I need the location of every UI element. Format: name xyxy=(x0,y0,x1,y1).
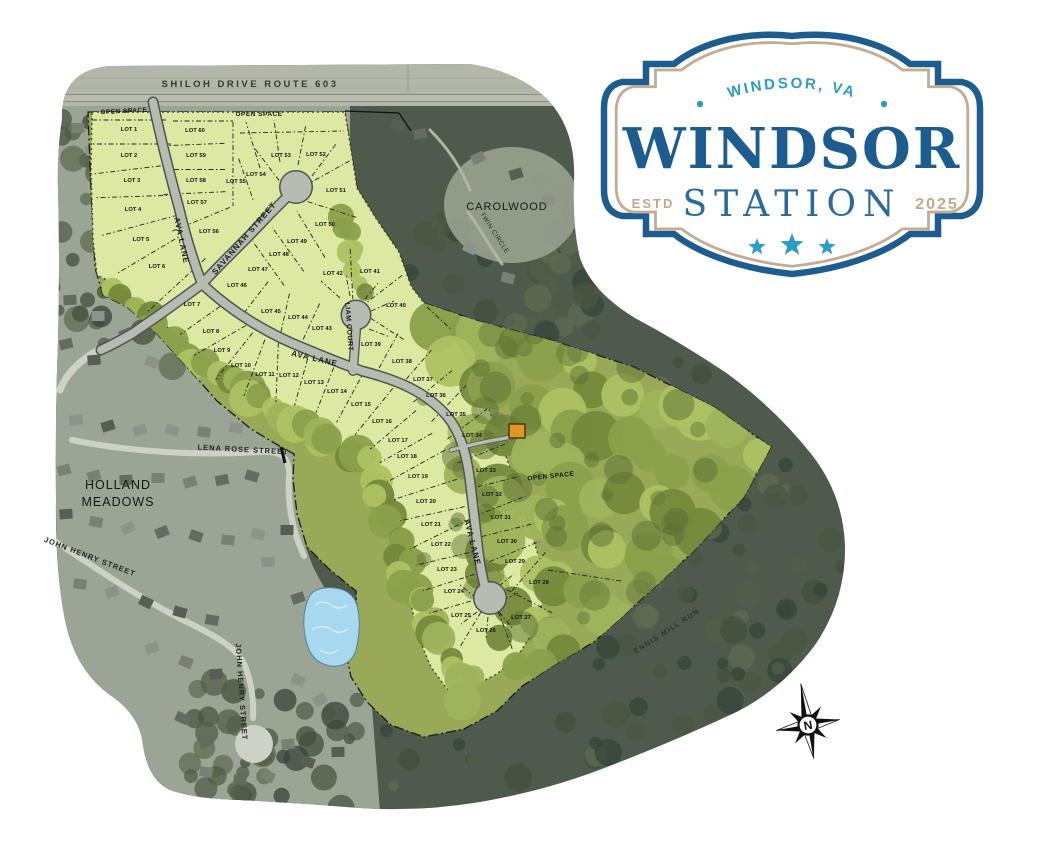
tree xyxy=(750,623,766,639)
lot-label: LOT 6 xyxy=(149,264,166,270)
tree xyxy=(780,628,807,655)
tree xyxy=(763,484,788,509)
tree xyxy=(35,268,60,293)
lot-label: LOT 58 xyxy=(186,178,206,184)
lot-label: LOT 9 xyxy=(214,348,231,354)
tree xyxy=(787,691,801,705)
tree xyxy=(524,285,551,312)
tree xyxy=(631,304,644,317)
tree xyxy=(627,723,644,740)
tree xyxy=(194,777,217,800)
tree xyxy=(701,298,718,315)
wooded-buffer-shade xyxy=(690,422,706,438)
tree xyxy=(388,781,399,792)
site-plan-map: SHILOH DRIVE ROUTE 603AVA LANESAVANNAH S… xyxy=(0,0,1040,864)
tree xyxy=(639,606,659,626)
lot-label: LOT 59 xyxy=(186,153,206,159)
house xyxy=(229,422,243,434)
tree xyxy=(808,364,823,379)
tree xyxy=(600,271,612,283)
lot-label: LOT 13 xyxy=(304,380,324,386)
wooded-buffer-shade xyxy=(549,515,565,531)
lot-label: LOT 8 xyxy=(203,329,220,335)
tree xyxy=(702,771,723,792)
tree xyxy=(750,758,761,769)
tree xyxy=(743,288,761,306)
house xyxy=(209,668,223,679)
tree xyxy=(717,687,744,714)
lot-label: LOT 16 xyxy=(372,419,392,425)
house xyxy=(233,774,247,785)
lot-label: LOT 12 xyxy=(279,373,299,379)
lot-label: LOT 20 xyxy=(416,499,436,505)
tree xyxy=(735,580,761,606)
tree xyxy=(184,769,198,783)
lot-label: LOT 25 xyxy=(451,613,471,619)
house xyxy=(199,766,213,778)
tree xyxy=(846,411,864,429)
tree xyxy=(814,583,828,597)
tree xyxy=(791,558,805,572)
pond xyxy=(304,588,360,667)
tree xyxy=(629,697,648,716)
tree xyxy=(835,560,848,573)
tree xyxy=(677,586,694,603)
wooded-buffer xyxy=(444,683,481,720)
tree xyxy=(673,357,684,368)
wooded-buffer xyxy=(356,283,373,300)
tree xyxy=(66,253,80,267)
tree xyxy=(741,347,762,368)
tree xyxy=(653,663,668,678)
house xyxy=(152,473,165,483)
tree xyxy=(728,644,754,670)
lot-label: LOT 10 xyxy=(231,363,251,369)
wooded-buffer-shade xyxy=(632,521,662,551)
lot-label: LOT 57 xyxy=(187,200,207,206)
lot-label: LOT 48 xyxy=(269,252,289,258)
tree xyxy=(808,404,833,429)
lot-label: LOT 17 xyxy=(388,438,408,444)
house xyxy=(73,578,87,590)
lot-label: LOT 7 xyxy=(184,302,200,308)
tree xyxy=(60,146,86,172)
tree xyxy=(274,689,297,712)
tree xyxy=(716,761,726,771)
house xyxy=(281,525,294,535)
lot-label: LOT 29 xyxy=(505,559,525,565)
house xyxy=(331,747,344,757)
tree xyxy=(533,787,556,810)
lot-label: LOT 22 xyxy=(431,542,451,548)
site-plan-page: SHILOH DRIVE ROUTE 603AVA LANESAVANNAH S… xyxy=(0,0,1040,864)
arc-dot-right xyxy=(881,101,887,107)
tree xyxy=(582,321,600,339)
tree xyxy=(595,739,622,766)
lot-label: LOT 44 xyxy=(288,315,308,321)
tree xyxy=(432,239,446,253)
wooded-buffer-shade xyxy=(589,522,614,547)
tree xyxy=(53,305,64,316)
house xyxy=(197,426,211,438)
wooded-buffer-shade xyxy=(650,491,665,506)
tree xyxy=(786,320,809,343)
tree xyxy=(555,712,576,733)
tree xyxy=(719,720,737,738)
house xyxy=(221,535,235,546)
area-label: MEADOWS xyxy=(82,495,155,509)
tree xyxy=(296,702,314,720)
house xyxy=(92,311,105,321)
tree xyxy=(838,347,856,365)
logo-year: 2025 xyxy=(915,196,959,213)
tree xyxy=(787,485,808,506)
lot-label: LOT 53 xyxy=(271,153,291,159)
logo-subname: STATION xyxy=(683,184,902,225)
lot-label: LOT 41 xyxy=(360,269,380,275)
lot-label: LOT 38 xyxy=(392,359,412,365)
tree xyxy=(828,434,849,455)
tree xyxy=(692,364,713,385)
tree xyxy=(52,109,72,129)
lot-label: LOT 50 xyxy=(315,222,335,228)
lot-label: LOT 51 xyxy=(326,188,346,194)
house xyxy=(59,509,73,520)
lot-label: LOT 39 xyxy=(361,342,381,348)
tree xyxy=(625,793,648,816)
lot-label: LOT 52 xyxy=(306,152,326,158)
wooded-buffer-shade xyxy=(604,455,633,484)
tree xyxy=(380,725,393,738)
area-label: CAROLWOOD xyxy=(466,201,548,213)
windsor-station-logo: WINDSOR, VA WINDSOR STATION ESTD 2025 xyxy=(604,35,980,274)
arc-dot-left xyxy=(697,101,703,107)
tree xyxy=(443,273,464,294)
lot-label: LOT 42 xyxy=(323,271,343,277)
tree xyxy=(398,749,420,771)
lot-label: LOT 31 xyxy=(491,515,511,521)
house xyxy=(63,295,77,306)
tree xyxy=(678,656,692,670)
wooded-buffer xyxy=(341,222,361,242)
lot-label: LOT 3 xyxy=(124,178,141,184)
tree xyxy=(617,253,635,271)
wooded-buffer-shade xyxy=(579,580,610,611)
lot-label: LOT 11 xyxy=(255,372,275,378)
lot-label: LOT 2 xyxy=(121,153,137,159)
tree xyxy=(621,261,648,288)
wooded-buffer-shade xyxy=(515,339,533,357)
lot-label: LOT 4 xyxy=(125,207,142,213)
lot-label: LOT 24 xyxy=(444,589,464,595)
tree xyxy=(467,754,478,765)
tree xyxy=(733,544,746,557)
lot-label: LOT 23 xyxy=(437,567,457,573)
tree xyxy=(778,604,791,617)
lot-label: LOT 1 xyxy=(121,127,138,133)
lot-label: LOT 37 xyxy=(413,377,433,383)
lot-label: LOT 15 xyxy=(351,402,371,408)
lot-label: LOT 47 xyxy=(248,267,268,273)
tree xyxy=(677,768,697,788)
tree xyxy=(671,263,685,277)
house xyxy=(205,614,219,626)
tree xyxy=(841,549,858,566)
house xyxy=(71,123,84,133)
lot-label: LOT 5 xyxy=(133,237,150,243)
lot-label: LOT 21 xyxy=(421,522,441,528)
tree xyxy=(757,274,771,288)
wooded-buffer-shade xyxy=(693,458,718,483)
tree xyxy=(80,292,95,307)
lot-label: LOT 40 xyxy=(386,303,406,309)
lot-label: LOT 26 xyxy=(476,628,496,634)
lot-label: LOT 55 xyxy=(226,179,246,185)
wooded-buffer-shade xyxy=(550,433,566,449)
tree xyxy=(453,738,465,750)
house xyxy=(261,557,274,567)
tree xyxy=(596,635,620,659)
tree xyxy=(717,668,731,682)
tree xyxy=(720,616,747,643)
tree xyxy=(504,764,532,792)
tree xyxy=(771,662,784,675)
lot-label: LOT 27 xyxy=(511,615,531,621)
lot-label: LOT 36 xyxy=(426,393,446,399)
tree xyxy=(72,305,88,321)
tree xyxy=(755,275,768,288)
wooded-buffer-shade xyxy=(601,489,613,501)
tree xyxy=(274,788,290,804)
logo-estd: ESTD xyxy=(632,196,675,211)
tree xyxy=(332,808,350,826)
wooded-buffer-shade xyxy=(577,611,590,624)
tree xyxy=(672,714,694,736)
wooded-buffer-shade xyxy=(584,452,599,467)
lot-label: LOT 14 xyxy=(327,389,347,395)
tree xyxy=(758,358,781,381)
tree xyxy=(583,201,603,221)
lot-label: LOT 28 xyxy=(529,580,549,586)
tree xyxy=(311,765,337,791)
house xyxy=(87,355,101,366)
tree xyxy=(746,560,759,573)
tree xyxy=(717,658,728,669)
lot-label: LOT 19 xyxy=(408,474,428,480)
street-label: SHILOH DRIVE ROUTE 603 xyxy=(162,79,339,90)
lot-label: LOT 43 xyxy=(312,326,332,332)
amenity-marker xyxy=(509,424,525,438)
lot-label: LOT 56 xyxy=(199,229,219,235)
tree xyxy=(593,230,613,250)
lot-label: LOT 30 xyxy=(497,539,517,545)
area-label: HOLLAND xyxy=(85,478,151,492)
tree xyxy=(806,657,832,683)
tree xyxy=(46,280,61,295)
tree xyxy=(52,127,71,146)
tree xyxy=(737,514,756,533)
wooded-buffer-shade xyxy=(491,412,506,427)
tree xyxy=(51,221,73,243)
tree xyxy=(344,733,355,744)
tree xyxy=(778,458,792,472)
compass-rose: N xyxy=(769,678,845,764)
lot-label: LOT 32 xyxy=(482,492,502,498)
lot-label: LOT 60 xyxy=(185,128,205,134)
wooded-buffer xyxy=(654,454,689,489)
wooded-buffer-shade xyxy=(622,389,639,406)
house xyxy=(69,414,83,425)
tree xyxy=(592,658,605,671)
tree xyxy=(602,700,630,728)
tree xyxy=(777,697,792,712)
wooded-buffer-shade xyxy=(520,392,534,406)
tree xyxy=(772,304,785,317)
area-label: OPEN SPACE xyxy=(235,111,282,118)
tree xyxy=(668,741,696,769)
lot-label: LOT 46 xyxy=(227,283,247,289)
tree xyxy=(781,351,808,378)
tree xyxy=(677,765,696,784)
lot-label: LOT 45 xyxy=(261,309,281,315)
wooded-buffer-shade xyxy=(664,508,688,532)
wooded-buffer-shade xyxy=(417,552,432,567)
wooded-buffer-shade xyxy=(570,366,589,385)
tree xyxy=(572,283,598,309)
tree xyxy=(327,795,355,823)
tree xyxy=(322,706,336,720)
lot-label: LOT 34 xyxy=(462,433,482,439)
lot-label: LOT 18 xyxy=(397,454,417,460)
lot-label: LOT 54 xyxy=(246,172,266,178)
tree xyxy=(796,398,821,423)
tree xyxy=(414,801,440,827)
wooded-buffer xyxy=(337,240,362,265)
wooded-buffer-shade xyxy=(480,372,512,404)
logo-name: WINDSOR xyxy=(622,116,962,182)
lot-label: LOT 35 xyxy=(446,412,466,418)
tree xyxy=(818,528,842,552)
tree xyxy=(695,322,723,350)
tree xyxy=(80,193,92,205)
lot-label: LOT 49 xyxy=(287,239,307,245)
house xyxy=(281,739,295,750)
lot-label: LOT 33 xyxy=(476,468,496,474)
tree xyxy=(731,667,745,681)
tree xyxy=(721,734,748,761)
